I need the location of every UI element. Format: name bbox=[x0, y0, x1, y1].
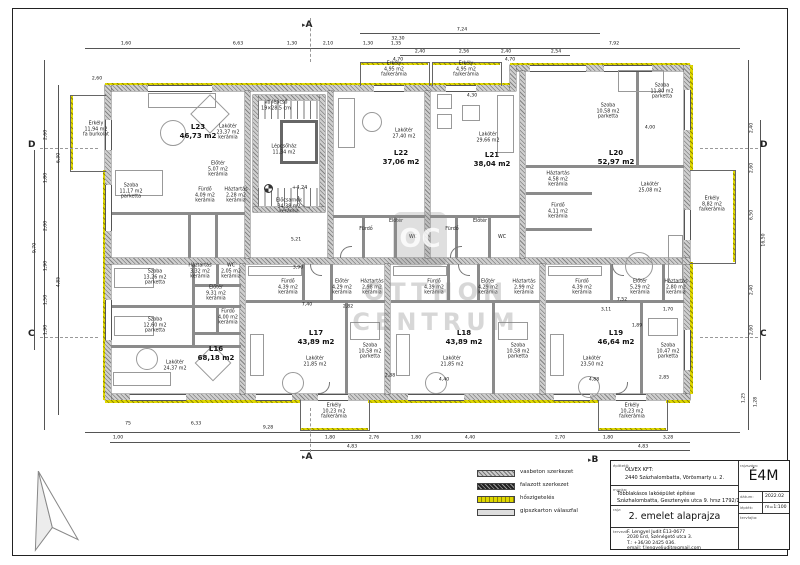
furniture-outline bbox=[548, 266, 602, 276]
room-label: Lakótér24,37 m2 bbox=[164, 360, 187, 371]
element: kerámia bbox=[208, 173, 228, 179]
section-marker-c-left: C bbox=[28, 329, 35, 339]
room-label: Lakótér27,40 m2 bbox=[393, 128, 416, 139]
element: parketta bbox=[144, 281, 167, 287]
element: Fürdő bbox=[218, 310, 238, 316]
element: Fürdő bbox=[572, 280, 592, 286]
window-opening bbox=[684, 330, 691, 370]
element: B bbox=[592, 455, 599, 465]
window-opening bbox=[530, 65, 586, 72]
date-value: 2022.02 bbox=[765, 494, 784, 499]
dimension-line bbox=[110, 442, 690, 443]
title-block-line bbox=[738, 502, 789, 503]
designer-phone: T.: +36/30 2425 036. bbox=[627, 541, 676, 546]
furniture-outline bbox=[282, 372, 304, 394]
apartment-label-l22: L2237,06 m2 bbox=[383, 149, 420, 167]
dimension-label: 4,83 bbox=[347, 445, 357, 450]
room-label: Fürdő4,39 m2kerámia bbox=[278, 280, 298, 297]
window-opening bbox=[684, 90, 691, 130]
window-opening bbox=[684, 210, 691, 240]
section-trace-line bbox=[700, 337, 758, 338]
room-label: Lépcsőház11,34 m2 bbox=[271, 144, 296, 155]
element: 38,04 m2 bbox=[474, 160, 511, 169]
element: kerámia bbox=[332, 291, 352, 297]
dimension-label: 4,83 bbox=[638, 445, 648, 450]
room-label: Fürdő4,00 m2kerámia bbox=[218, 310, 238, 327]
element: Előtér bbox=[332, 280, 352, 286]
section-trace-line bbox=[40, 337, 98, 338]
dimension-label: 2,00 bbox=[44, 221, 49, 231]
furniture-outline bbox=[136, 348, 158, 370]
element: fa burkolat bbox=[83, 133, 109, 139]
title-block-line bbox=[762, 491, 763, 513]
element: kerámia bbox=[278, 291, 298, 297]
room-label: Előtér bbox=[473, 219, 487, 225]
dimension-label: 4,85 bbox=[57, 277, 62, 287]
insulation-strip bbox=[690, 262, 693, 394]
title-block-line bbox=[611, 527, 738, 528]
room-label: Szoba11,17 m2parketta bbox=[120, 184, 143, 201]
furniture-outline bbox=[497, 95, 514, 153]
partition-wall bbox=[526, 228, 592, 231]
dimension-label: 2,85 bbox=[659, 376, 669, 381]
room-label: Háztartás2,80 m2kerámia bbox=[664, 280, 687, 297]
apartment-label-l17: L1743,89 m2 bbox=[298, 329, 335, 347]
room-label: Előcsarnok34,38 m2kerámia bbox=[276, 199, 302, 216]
room-label: Szoba10,58 m2parketta bbox=[597, 104, 620, 121]
partition-wall bbox=[345, 300, 348, 394]
element: kerámia bbox=[217, 136, 240, 142]
dimension-label: 1,89 bbox=[632, 324, 642, 329]
element: parketta bbox=[657, 355, 680, 361]
element: Előtér bbox=[473, 219, 487, 225]
window-opening bbox=[256, 394, 292, 401]
room-label: Szoba10,47 m2parketta bbox=[657, 344, 680, 361]
legend-swatch-concrete bbox=[477, 470, 515, 477]
room-label: Lakótér29,66 m2 bbox=[477, 132, 500, 143]
dimension-label: 1,70 bbox=[663, 308, 673, 313]
wall-segment bbox=[245, 91, 250, 258]
dimension-label: 2,40 bbox=[415, 50, 425, 55]
element: Lakótér bbox=[477, 132, 500, 138]
project-name: Többlakásos lakóépület építése bbox=[617, 491, 695, 497]
element: Fürdő bbox=[548, 204, 568, 210]
dimension-line bbox=[44, 60, 45, 430]
room-label: Előtér9,31 m2kerámia bbox=[206, 286, 226, 303]
element: 27,40 m2 bbox=[393, 134, 416, 140]
room-label: Előtér4,29 m2kerámia bbox=[332, 280, 352, 297]
room-label: Lakótér25,08 m2 bbox=[639, 182, 662, 193]
dimension-label: 1,60 bbox=[121, 42, 131, 47]
room-label: WC2,05 m2kerámia bbox=[221, 264, 241, 281]
room-label: Szoba10,58 m2parketta bbox=[359, 344, 382, 361]
dimension-label: 4,40 bbox=[465, 436, 475, 441]
element: kerámia bbox=[546, 183, 569, 189]
element: Előcsarnok bbox=[276, 199, 302, 205]
client-address: 2440 Százhalombatta, Vörösmarty u. 2. bbox=[625, 475, 724, 481]
element: Lakótér bbox=[581, 356, 604, 362]
element: 24,37 m2 bbox=[164, 366, 187, 372]
element: Háztartás bbox=[546, 172, 569, 178]
dimension-label: 6,33 bbox=[191, 422, 201, 427]
dimension-label: 2,40 bbox=[501, 50, 511, 55]
legend-label: gipszkarton válaszfal bbox=[520, 508, 578, 514]
dimension-label: 2,60 bbox=[44, 130, 49, 140]
insulation-strip bbox=[666, 400, 690, 403]
element: 25,08 m2 bbox=[639, 188, 662, 194]
dimension-label: 1,35 bbox=[391, 42, 401, 47]
element: Háztartás bbox=[224, 188, 247, 194]
furniture-outline bbox=[462, 105, 480, 121]
window-opening bbox=[105, 300, 112, 340]
wall-segment bbox=[328, 91, 333, 258]
designer-address: 2030 Érd, Szénégető utca 3. bbox=[627, 535, 692, 540]
element: Fürdő bbox=[445, 227, 458, 233]
apartment-label-l23: L2346,73 m2 bbox=[180, 123, 217, 141]
wall-segment bbox=[540, 264, 545, 394]
element: kerámia bbox=[224, 199, 247, 205]
furniture-outline bbox=[396, 334, 410, 376]
window-opening bbox=[105, 185, 112, 231]
dimension-label: 1,80 bbox=[44, 173, 49, 183]
partition-wall bbox=[216, 264, 219, 284]
legend-swatch-masonry bbox=[477, 483, 515, 490]
watermark-line1: OTTHON bbox=[364, 278, 508, 306]
project-address: Százhalombatta, Gesztenyés utca 9. hrsz … bbox=[617, 498, 740, 504]
window-opening bbox=[374, 85, 404, 92]
watermark-line2: CENTRUM bbox=[352, 308, 519, 336]
element: 37,06 m2 bbox=[383, 158, 420, 167]
element: L16 bbox=[198, 345, 235, 354]
dimension-label: 7,40 bbox=[302, 303, 312, 308]
element: Előtér bbox=[206, 286, 226, 292]
element: L21 bbox=[474, 151, 511, 160]
partition-wall bbox=[188, 214, 191, 258]
element: parketta bbox=[359, 355, 382, 361]
window-opening bbox=[130, 394, 186, 401]
dimension-label: 6,50 bbox=[750, 210, 755, 220]
element: Fürdő bbox=[195, 188, 215, 194]
element: Háztartás bbox=[188, 264, 211, 270]
apartment-label-l20: L2052,97 m2 bbox=[598, 149, 635, 167]
element: kerámia bbox=[276, 210, 302, 216]
room-label: Szoba12,60 m2parketta bbox=[144, 318, 167, 335]
furniture-outline bbox=[338, 98, 355, 148]
furniture-outline bbox=[113, 372, 171, 386]
dimension-label: 2,56 bbox=[459, 50, 469, 55]
room-label: Lakótér21,85 m2 bbox=[441, 356, 464, 367]
dimension-label: 2,60 bbox=[92, 77, 102, 82]
dimension-label: 1,25 bbox=[742, 393, 747, 403]
element: vb lépcső bbox=[261, 100, 291, 106]
element: Lakótér bbox=[304, 356, 327, 362]
section-trace-line bbox=[310, 408, 311, 452]
element: kerámia bbox=[572, 291, 592, 297]
drawing-title: 2. emelet alaprajza bbox=[611, 511, 738, 522]
element: kerámia bbox=[512, 291, 535, 297]
title-block-line bbox=[738, 491, 789, 492]
element: C bbox=[760, 329, 767, 339]
dimension-label: 2,40 bbox=[750, 285, 755, 295]
room-label: Háztartás4,58 m2kerámia bbox=[546, 172, 569, 189]
element: Fürdő bbox=[278, 280, 298, 286]
partition-wall bbox=[488, 217, 491, 258]
partition-wall bbox=[215, 214, 218, 258]
wall-segment bbox=[320, 95, 325, 212]
dimension-label: 1,30 bbox=[363, 42, 373, 47]
dimension-label: 1,80 bbox=[325, 436, 335, 441]
room-label: Erkély4,95 m2fa/kerámia bbox=[453, 62, 479, 79]
dimension-label: 2,60 bbox=[750, 163, 755, 173]
dimension-label: 4,70 bbox=[505, 58, 515, 63]
dimension-label: 2,88 bbox=[385, 374, 395, 379]
designer-name: F. Lengyel Judit É13-0677 bbox=[627, 530, 685, 535]
dimension-label: 7,92 bbox=[609, 42, 619, 47]
element: Előtér bbox=[630, 280, 650, 286]
element: kerámia bbox=[221, 275, 241, 281]
scale-value: m=1:100 bbox=[765, 505, 787, 510]
room-label: Erkély10,23 m2fa/kerámia bbox=[619, 404, 645, 421]
section-marker-a-bottom: ▸A bbox=[302, 452, 312, 462]
element: parketta bbox=[144, 329, 167, 335]
partition-wall bbox=[526, 192, 592, 195]
element: Fürdő bbox=[359, 227, 372, 233]
dimension-label: 5,21 bbox=[291, 238, 301, 243]
title-block-line bbox=[611, 505, 738, 506]
room-label: WC bbox=[498, 235, 506, 241]
room-label: Erkély8,82 m2fa/kerámia bbox=[699, 197, 725, 214]
room-label: Fürdő4,11 m2kerámia bbox=[548, 204, 568, 221]
field-label: lépték: bbox=[740, 505, 753, 510]
element: 52,97 m2 bbox=[598, 158, 635, 167]
section-marker-d-right: D bbox=[760, 140, 767, 150]
client-name: OLVEX KFT: bbox=[625, 467, 653, 473]
room-label: Fürdő bbox=[359, 227, 372, 233]
dimension-label: 2,70 bbox=[555, 436, 565, 441]
element: WC bbox=[498, 235, 506, 241]
dimension-label: 2,76 bbox=[369, 436, 379, 441]
furniture-outline bbox=[668, 235, 683, 283]
dimension-label: 16,50 bbox=[762, 233, 767, 246]
dimension-label: 6,30 bbox=[57, 153, 62, 163]
section-marker-c-right: C bbox=[760, 329, 767, 339]
legend-swatch-drywall bbox=[477, 509, 515, 516]
dimension-label: 4,88 bbox=[589, 378, 599, 383]
room-label: Lakótér23,50 m2 bbox=[581, 356, 604, 367]
section-trace-line bbox=[40, 148, 98, 149]
section-trace-line bbox=[700, 148, 758, 149]
partition-wall bbox=[546, 300, 684, 303]
drawing-code: É4M bbox=[738, 468, 789, 484]
dimension-line bbox=[760, 120, 761, 380]
dimension-line bbox=[85, 432, 740, 433]
dimension-line bbox=[58, 85, 59, 415]
element: A bbox=[306, 20, 313, 30]
dimension-label: 7,52 bbox=[617, 298, 627, 303]
dimension-label: 9,28 bbox=[263, 426, 273, 431]
legend-label: hőszigetelés bbox=[520, 495, 554, 501]
watermark-logo: OC bbox=[393, 212, 447, 266]
field-label: tervfajta: bbox=[740, 515, 757, 520]
element: kerámia bbox=[630, 291, 650, 297]
element: L17 bbox=[298, 329, 335, 338]
furniture-outline bbox=[550, 334, 564, 376]
dimension-label: 4,40 bbox=[439, 378, 449, 383]
drawing-sheet: +4,24 Erkély11,94 m2fa burkolatLakótér23… bbox=[0, 0, 800, 565]
room-label: Szoba13,26 m2parketta bbox=[144, 270, 167, 287]
element: L19 bbox=[598, 329, 635, 338]
room-label: Erkély10,23 m2fa/kerámia bbox=[321, 404, 347, 421]
wall-segment bbox=[253, 95, 325, 100]
element: Előtér bbox=[208, 162, 228, 168]
element: 21,85 m2 bbox=[304, 362, 327, 368]
room-label: vb lépcső19×28,5 cm bbox=[261, 100, 291, 111]
room-label: Lakótér21,85 m2 bbox=[304, 356, 327, 367]
element: Lakótér bbox=[441, 356, 464, 362]
dimension-label: 1,28 bbox=[754, 397, 759, 407]
partition-wall bbox=[362, 217, 365, 258]
legend-label: falazott szerkezet bbox=[520, 482, 569, 488]
dimension-label: 75 bbox=[125, 422, 131, 427]
element: C bbox=[28, 329, 35, 339]
room-label: Szoba10,58 m2parketta bbox=[507, 344, 530, 361]
element: fa/kerámia bbox=[381, 73, 407, 79]
element: parketta bbox=[651, 95, 674, 101]
dimension-label: 2,10 bbox=[323, 42, 333, 47]
section-marker-a-top: ▸A bbox=[302, 20, 312, 30]
furniture-outline bbox=[362, 112, 382, 132]
dimension-label: 1,00 bbox=[113, 436, 123, 441]
title-block-line bbox=[611, 485, 738, 486]
dimension-label: 4,30 bbox=[467, 94, 477, 99]
room-label: Előtér5,29 m2kerámia bbox=[630, 280, 650, 297]
element: fa/kerámia bbox=[699, 208, 725, 214]
dimension-label: 1,90 bbox=[44, 261, 49, 271]
element: kerámia bbox=[188, 275, 211, 281]
dimension-label: 1,30 bbox=[287, 42, 297, 47]
title-block: építtető: OLVEX KFT: 2440 Százhalombatta… bbox=[610, 460, 790, 550]
apartment-label-l16: L1668,18 m2 bbox=[198, 345, 235, 363]
element: kerámia bbox=[548, 215, 568, 221]
legend-swatch-insulation bbox=[477, 496, 515, 503]
window-opening bbox=[616, 394, 646, 401]
element: Lakótér bbox=[164, 360, 187, 366]
element: kerámia bbox=[664, 291, 687, 297]
balcony-outline bbox=[690, 170, 736, 264]
element: parketta bbox=[597, 115, 620, 121]
element: L23 bbox=[180, 123, 217, 132]
element: 46,73 m2 bbox=[180, 132, 217, 141]
element: D bbox=[760, 140, 767, 150]
dimension-label: 2,60 bbox=[750, 325, 755, 335]
element: 11,34 m2 bbox=[271, 150, 296, 156]
element: Lakótér bbox=[393, 128, 416, 134]
room-label: Szoba11,80 m2parketta bbox=[651, 84, 674, 101]
element: 29,66 m2 bbox=[477, 138, 500, 144]
apartment-label-l19: L1946,64 m2 bbox=[598, 329, 635, 347]
dimension-label: 3,28 bbox=[663, 436, 673, 441]
dimension-line bbox=[300, 450, 690, 451]
dimension-label: 1,90 bbox=[44, 325, 49, 335]
section-marker-b: ▸B bbox=[588, 455, 598, 465]
dimension-label: 1,80 bbox=[411, 436, 421, 441]
partition-wall bbox=[111, 212, 245, 215]
level-mark: +4,24 bbox=[292, 185, 307, 191]
dimension-label: 7,24 bbox=[457, 28, 467, 33]
element: Háztartás bbox=[664, 280, 687, 286]
element: 43,89 m2 bbox=[446, 338, 483, 347]
room-label: Előtér5,07 m2kerámia bbox=[208, 162, 228, 179]
room-label: Erkély11,94 m2fa burkolat bbox=[83, 122, 109, 139]
dimension-label: 1,50 bbox=[44, 295, 49, 305]
element: 21,85 m2 bbox=[441, 362, 464, 368]
element: 46,64 m2 bbox=[598, 338, 635, 347]
element: parketta bbox=[507, 355, 530, 361]
element: kerámia bbox=[206, 297, 226, 303]
furniture-outline bbox=[425, 372, 447, 394]
element: 23,50 m2 bbox=[581, 362, 604, 368]
element: kerámia bbox=[218, 321, 238, 327]
room-label: Fürdő4,39 m2kerámia bbox=[572, 280, 592, 297]
furniture-outline bbox=[625, 252, 653, 280]
field-label: rajzszám: bbox=[740, 463, 758, 468]
dimension-line bbox=[360, 33, 600, 34]
dimension-label: 9,70 bbox=[33, 243, 38, 253]
furniture-outline bbox=[250, 334, 264, 376]
room-label: Erkély4,95 m2fa/kerámia bbox=[381, 62, 407, 79]
dimension-label: 1,80 bbox=[603, 436, 613, 441]
furniture-outline bbox=[437, 94, 452, 109]
wall-segment bbox=[510, 65, 516, 91]
window-opening bbox=[318, 394, 348, 401]
partition-wall bbox=[111, 305, 241, 308]
wall-segment bbox=[520, 71, 525, 258]
element: Háztartás bbox=[512, 280, 535, 286]
element: D bbox=[28, 140, 35, 150]
window-opening bbox=[408, 394, 464, 401]
field-label: dátum: bbox=[740, 494, 754, 499]
element: A bbox=[306, 452, 313, 462]
element: L20 bbox=[598, 149, 635, 158]
room-label: Fürdő4,09 m2kerámia bbox=[195, 188, 215, 205]
dimension-label: 4,70 bbox=[393, 58, 403, 63]
legend-label: vasbeton szerkezet bbox=[520, 469, 573, 475]
window-opening bbox=[148, 85, 212, 92]
dimension-label: 32,30 bbox=[391, 37, 404, 42]
dimension-label: 3,11 bbox=[601, 308, 611, 313]
partition-wall bbox=[192, 332, 241, 335]
element: Lakótér bbox=[217, 125, 240, 131]
element: Lakótér bbox=[639, 182, 662, 188]
element: 68,18 m2 bbox=[198, 354, 235, 363]
level-benchmark-icon bbox=[264, 184, 273, 193]
dimension-label: 2,54 bbox=[551, 50, 561, 55]
room-label: Háztartás3,32 m2kerámia bbox=[188, 264, 211, 281]
dimension-label: 4,00 bbox=[645, 126, 655, 131]
element: fa/kerámia bbox=[619, 415, 645, 421]
designer-email: email: f.lengyeljudit@gmail.com bbox=[627, 546, 701, 551]
dimension-label: 6,63 bbox=[233, 42, 243, 47]
room-label: Háztartás2,99 m2kerámia bbox=[512, 280, 535, 297]
furniture-outline bbox=[437, 114, 452, 129]
element: L22 bbox=[383, 149, 420, 158]
apartment-label-l21: L2138,04 m2 bbox=[474, 151, 511, 169]
element: 43,89 m2 bbox=[298, 338, 335, 347]
element: fa/kerámia bbox=[321, 415, 347, 421]
furniture-outline bbox=[648, 318, 678, 336]
element: 19×28,5 cm bbox=[261, 106, 291, 112]
window-opening bbox=[446, 85, 476, 92]
